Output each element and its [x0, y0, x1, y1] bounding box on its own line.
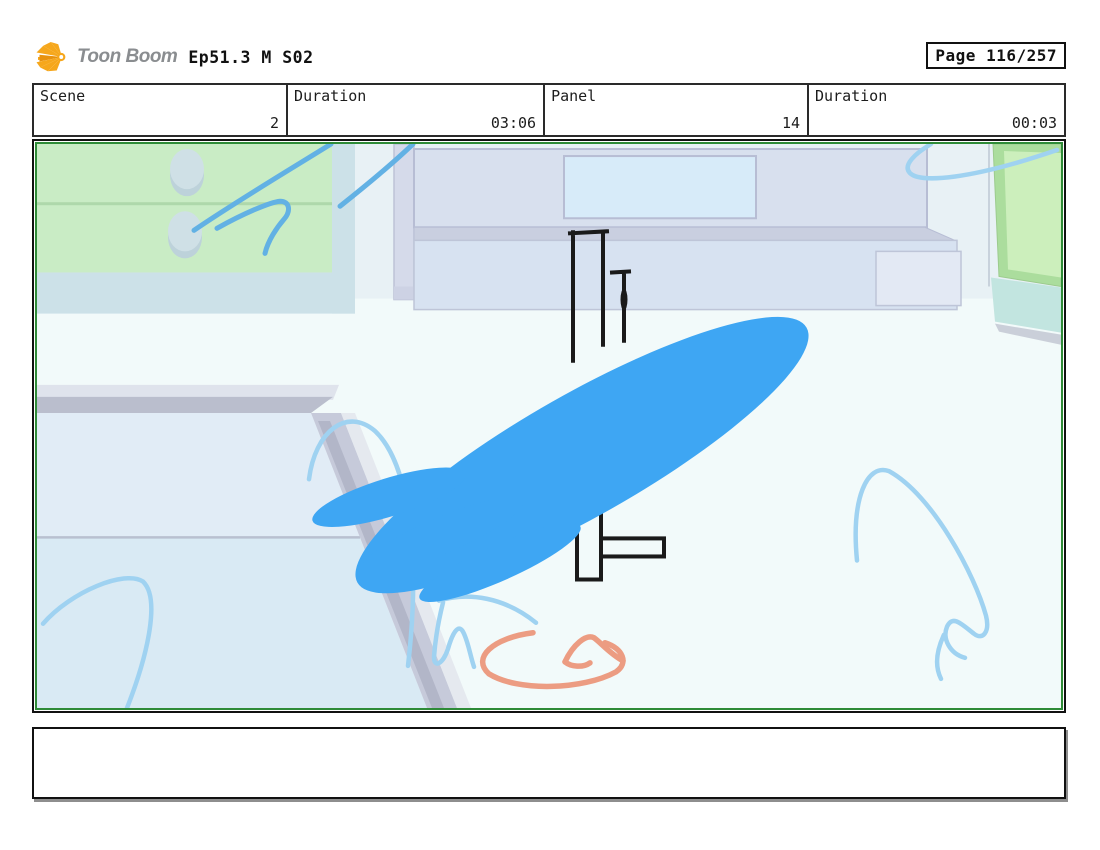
panel-duration-cell: Duration 00:03 — [807, 85, 1064, 135]
camera-frame-border — [35, 142, 1063, 710]
page-number-badge: Page 116/257 — [926, 42, 1066, 69]
episode-title: Ep51.3 M S02 — [188, 48, 313, 67]
storyboard-page: { "header": { "logo_text": "Toon Boom", … — [0, 0, 1100, 850]
storyboard-panel-frame — [32, 139, 1066, 713]
toonboom-starburst-icon — [36, 42, 70, 72]
shelf-and-counter — [414, 149, 961, 310]
caption-box — [32, 727, 1066, 799]
panel-cell: Panel 14 — [543, 85, 807, 135]
scene-duration-label: Duration — [288, 85, 543, 107]
panel-duration-value: 00:03 — [1012, 114, 1064, 135]
scene-cell: Scene 2 — [34, 85, 286, 135]
header: Toon Boom Ep51.3 M S02 — [36, 40, 314, 74]
storyboard-artwork — [37, 144, 1061, 708]
panel-info-table: Scene 2 Duration 03:06 Panel 14 Duration… — [32, 83, 1066, 137]
scene-duration-value: 03:06 — [491, 114, 543, 135]
green-door — [989, 144, 1061, 345]
panel-duration-label: Duration — [809, 85, 1064, 107]
scene-label: Scene — [34, 85, 286, 107]
panel-value: 14 — [782, 114, 807, 135]
scene-value: 2 — [270, 114, 286, 135]
scene-duration-cell: Duration 03:06 — [286, 85, 543, 135]
toonboom-logo-text: Toon Boom — [77, 46, 177, 68]
panel-label: Panel — [545, 85, 807, 107]
